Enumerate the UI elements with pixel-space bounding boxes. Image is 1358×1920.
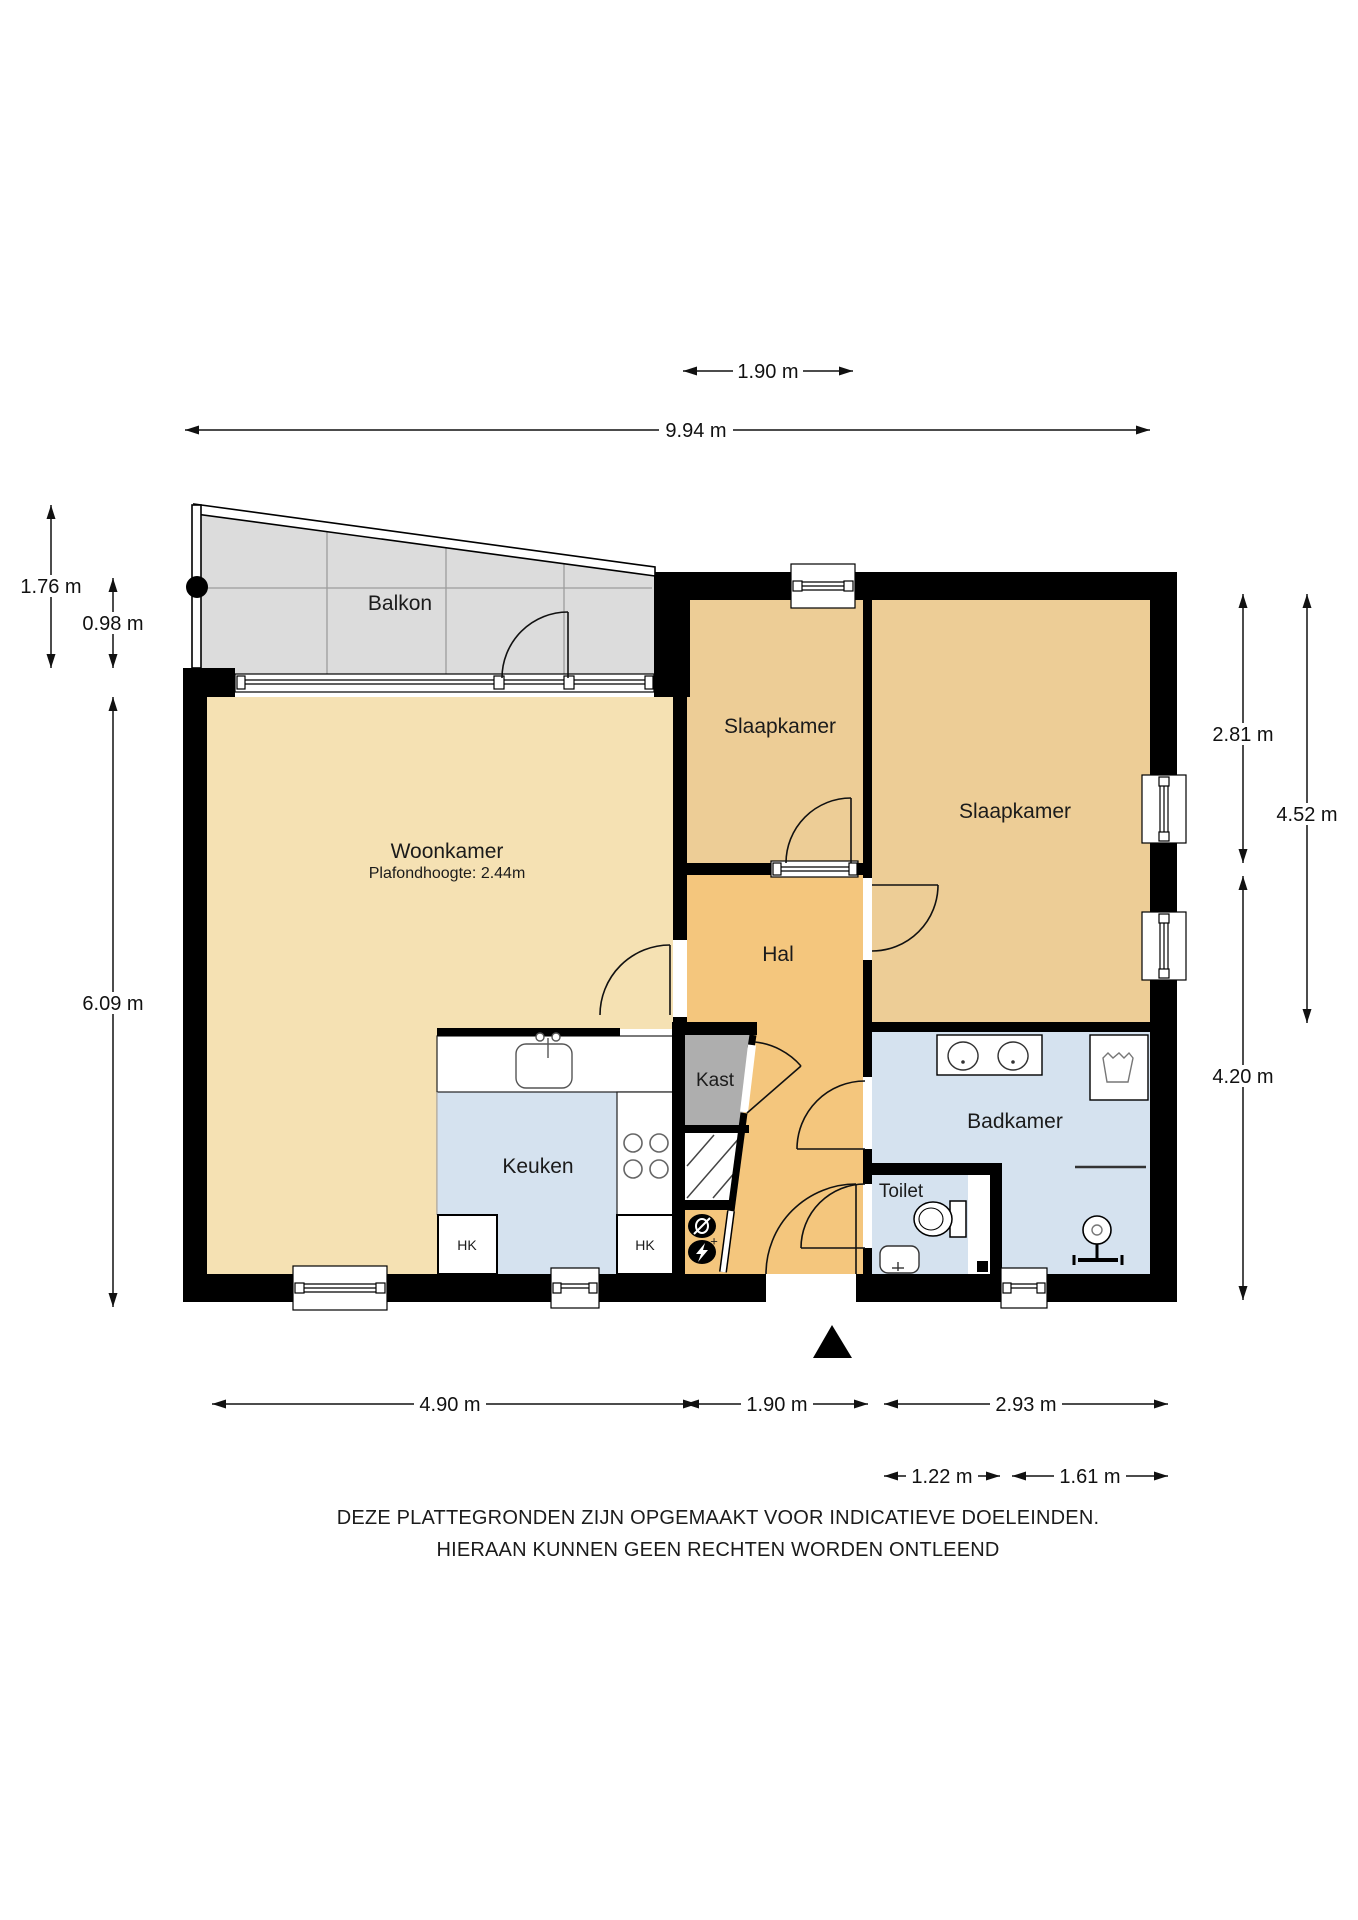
disclaimer-line2: HIERAAN KUNNEN GEEN RECHTEN WORDEN ONTLE…: [436, 1539, 999, 1561]
dim-bot-293: 2.93 m: [995, 1394, 1056, 1416]
window-icon: [551, 1268, 599, 1308]
toilet-partition: [968, 1175, 990, 1274]
entrance-arrow-icon: [813, 1325, 852, 1358]
balkon-label: Balkon: [368, 592, 432, 615]
hal-label: Hal: [762, 943, 794, 966]
window-icon: [791, 564, 855, 608]
bathroom-sink-icon: [937, 1035, 1042, 1075]
window-icon: [1142, 912, 1186, 980]
floorplan-drawing: +: [0, 0, 1358, 1920]
window-icon: [293, 1266, 387, 1310]
dim-right-281: 2.81 m: [1212, 724, 1273, 746]
floorplan-page: +: [0, 0, 1358, 1920]
dim-right-420: 4.20 m: [1212, 1066, 1273, 1088]
slaapkamer1-label: Slaapkamer: [724, 715, 836, 738]
sliding-door-icon: [235, 674, 654, 692]
toilet-label: Toilet: [879, 1181, 924, 1202]
window-icon: [1142, 775, 1186, 843]
gas-meter-icon: [688, 1214, 716, 1238]
balcony-post-icon: [186, 576, 208, 598]
dim-bot-122: 1.22 m: [911, 1466, 972, 1488]
kitchen-counter-column: [617, 1092, 673, 1215]
disclaimer-line1: DEZE PLATTEGRONDEN ZIJN OPGEMAAKT VOOR I…: [337, 1507, 1100, 1529]
dim-left-609: 6.09 m: [82, 993, 143, 1015]
dim-top-994: 9.94 m: [665, 420, 726, 442]
dim-bot-190: 1.90 m: [746, 1394, 807, 1416]
badkamer-label: Badkamer: [967, 1110, 1063, 1133]
dim-right-452: 4.52 m: [1276, 804, 1337, 826]
electric-meter-icon: [688, 1240, 716, 1264]
woonkamer-sublabel: Plafondhoogte: 2.44m: [369, 865, 526, 882]
dim-top-190: 1.90 m: [737, 361, 798, 383]
window-icon: [1001, 1268, 1047, 1308]
hk1-label: HK: [457, 1237, 477, 1253]
washing-machine-icon: [1090, 1035, 1148, 1100]
kast-label: Kast: [696, 1070, 735, 1091]
dim-bot-490: 4.90 m: [419, 1394, 480, 1416]
dim-bot-161: 1.61 m: [1059, 1466, 1120, 1488]
front-door-opening: [766, 1274, 856, 1302]
toilet-icon: [914, 1201, 966, 1237]
washbasin-icon: [880, 1246, 919, 1273]
dim-left-176: 1.76 m: [20, 576, 81, 598]
disclaimer: DEZE PLATTEGRONDEN ZIJN OPGEMAAKT VOOR I…: [337, 1507, 1100, 1561]
slaapkamer2-label: Slaapkamer: [959, 800, 1071, 823]
door-threshold: [771, 861, 858, 877]
keuken-label: Keuken: [502, 1155, 573, 1178]
dim-left-098: 0.98 m: [82, 613, 143, 635]
hk2-label: HK: [635, 1237, 655, 1253]
woonkamer-label: Woonkamer: [391, 840, 504, 863]
